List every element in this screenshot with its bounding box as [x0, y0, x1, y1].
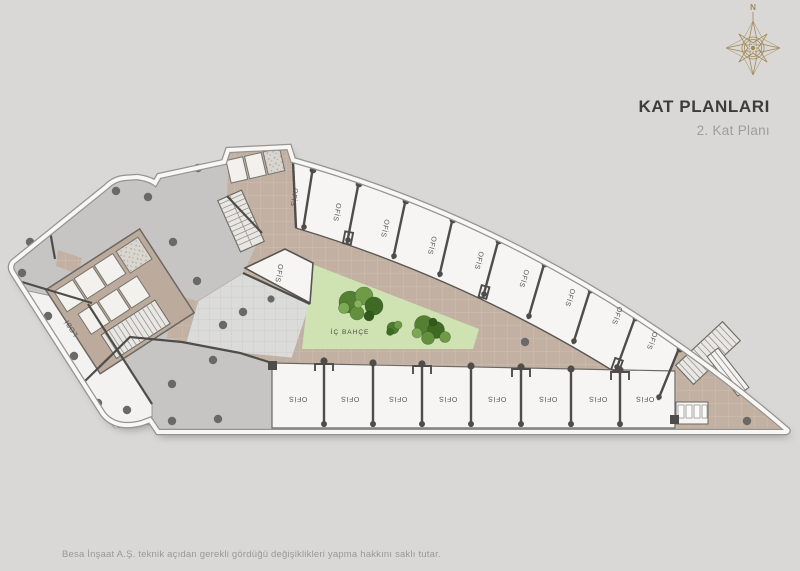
bottom-unit-label-6: OFİS	[539, 395, 558, 404]
page-subtitle: 2. Kat Planı	[510, 123, 770, 138]
column-dot	[521, 338, 529, 346]
bottom-unit-label-2: OFİS	[341, 395, 360, 404]
bottom-unit-label-8: OFİS	[636, 395, 655, 404]
title-block: KAT PLANLARI 2. Kat Planı	[510, 97, 770, 138]
courtyard-label: İÇ BAHÇE	[331, 327, 370, 336]
compass-center-dot	[751, 46, 755, 50]
column-dot	[193, 277, 201, 285]
floor-plan-page: OFİS OFİS OFİS OFİS OFİS OFİS OFİS OFİS …	[0, 0, 800, 571]
floor-plan-drawing: OFİS OFİS OFİS OFİS OFİS OFİS OFİS OFİS …	[0, 0, 800, 571]
bottom-unit-label-1: OFİS	[289, 395, 308, 404]
column-dot	[214, 415, 222, 423]
column-dot	[267, 295, 274, 302]
bottom-unit-label-4: OFİS	[439, 395, 458, 404]
column-dot	[144, 193, 152, 201]
north-label: N	[750, 3, 756, 12]
column-dot	[743, 417, 751, 425]
column-dot	[219, 321, 227, 329]
column-dot	[239, 308, 247, 316]
column-dot	[168, 380, 176, 388]
bottom-unit-label-3: OFİS	[389, 395, 408, 404]
column-dot	[169, 238, 177, 246]
footer-disclaimer: Besa İnşaat A.Ş. teknik açıdan gerekli g…	[62, 549, 441, 560]
compass-icon: N	[716, 2, 790, 88]
column-dot	[112, 187, 120, 195]
column-dot	[209, 356, 217, 364]
column-dot	[123, 406, 131, 414]
column-dot	[168, 417, 176, 425]
page-title: KAT PLANLARI	[510, 97, 770, 117]
column-dot	[18, 269, 26, 277]
bottom-unit-label-7: OFİS	[589, 395, 608, 404]
bottom-unit-label-5: OFİS	[488, 395, 507, 404]
